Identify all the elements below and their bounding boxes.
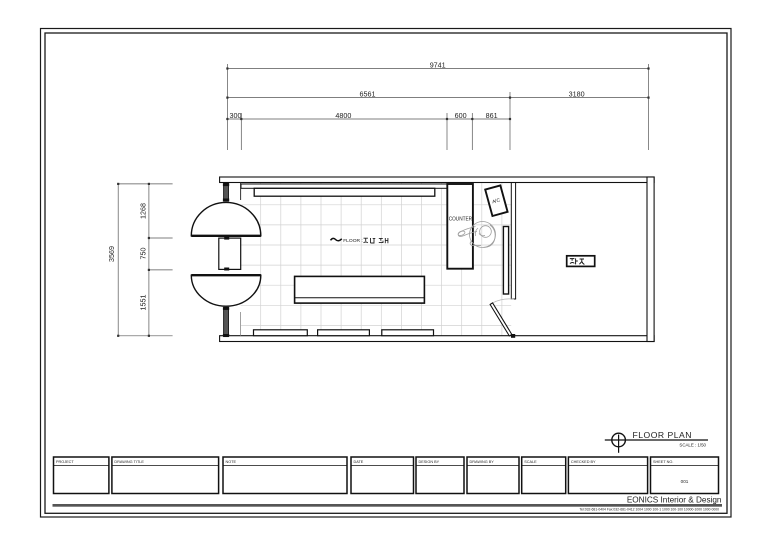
svg-text:FLOOR PLAN: FLOOR PLAN (633, 430, 692, 440)
svg-text:SCALE: SCALE (524, 460, 537, 464)
svg-text:6561: 6561 (360, 90, 376, 99)
svg-text:NOTE: NOTE (226, 460, 237, 464)
svg-text:1551: 1551 (139, 295, 148, 311)
svg-text:750: 750 (139, 248, 148, 260)
svg-text:600: 600 (455, 111, 467, 120)
svg-text:001: 001 (681, 479, 689, 484)
svg-text:EONICS Interior & Design: EONICS Interior & Design (627, 496, 722, 505)
svg-text:1268: 1268 (139, 203, 148, 219)
svg-text:DESIGN BY: DESIGN BY (419, 460, 440, 464)
svg-text:3569: 3569 (107, 246, 116, 262)
svg-text:DATE: DATE (354, 460, 364, 464)
svg-text:Tel:032-681-0404 Fax:032-681: Tel:032-681-0404 Fax:032-681-0412 1004 1… (579, 508, 719, 512)
svg-text:DRAWING TITLE: DRAWING TITLE (114, 460, 144, 464)
svg-text:DRAWING BY: DRAWING BY (470, 460, 495, 464)
svg-text:COUNTER: COUNTER (449, 217, 473, 223)
svg-text:FLOOR :: FLOOR : (343, 238, 363, 244)
svg-text:9741: 9741 (430, 60, 446, 69)
svg-text:SHEET NO.: SHEET NO. (653, 460, 673, 464)
svg-text:3180: 3180 (569, 90, 585, 99)
svg-text:PROJECT: PROJECT (56, 460, 74, 464)
svg-text:4800: 4800 (335, 111, 351, 120)
svg-text:861: 861 (486, 111, 498, 120)
svg-text:CHECKED BY: CHECKED BY (571, 460, 596, 464)
svg-text:300: 300 (230, 111, 242, 120)
svg-text:SCALE : 1/50: SCALE : 1/50 (679, 442, 706, 447)
